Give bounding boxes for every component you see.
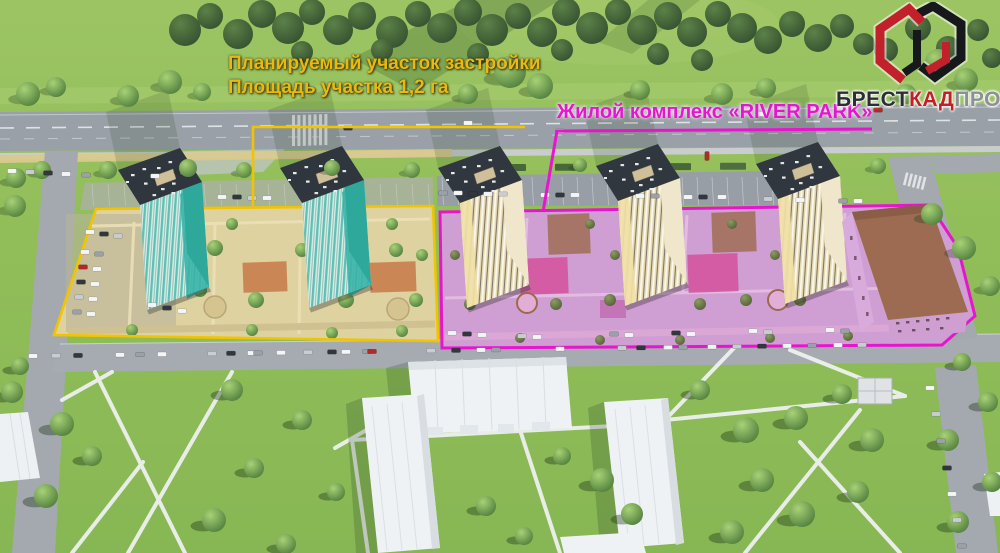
annotation-river-park: Жилой комплекс «RIVER PARK» <box>557 100 873 124</box>
annotation-planned-site: Планируемый участок застройки Площадь уч… <box>228 52 541 100</box>
planned-site-line1: Планируемый участок застройки <box>228 52 541 76</box>
logo-text-brest: БРЕСТ <box>836 88 909 111</box>
logo-icon <box>865 2 977 90</box>
planned-site-area <box>54 206 438 341</box>
company-logo: БРЕСТКАДПРОЕКТ <box>836 2 1000 112</box>
logo-text-proekt: ПРОЕКТ <box>954 88 1000 111</box>
planned-site-line2: Площадь участка 1,2 га <box>228 76 541 100</box>
logo-text: БРЕСТКАДПРОЕКТ <box>836 88 1000 112</box>
river-park-label: Жилой комплекс «RIVER PARK» <box>557 101 873 123</box>
aerial-render: Планируемый участок застройки Площадь уч… <box>0 0 1000 553</box>
logo-text-kad: КАД <box>909 88 954 111</box>
